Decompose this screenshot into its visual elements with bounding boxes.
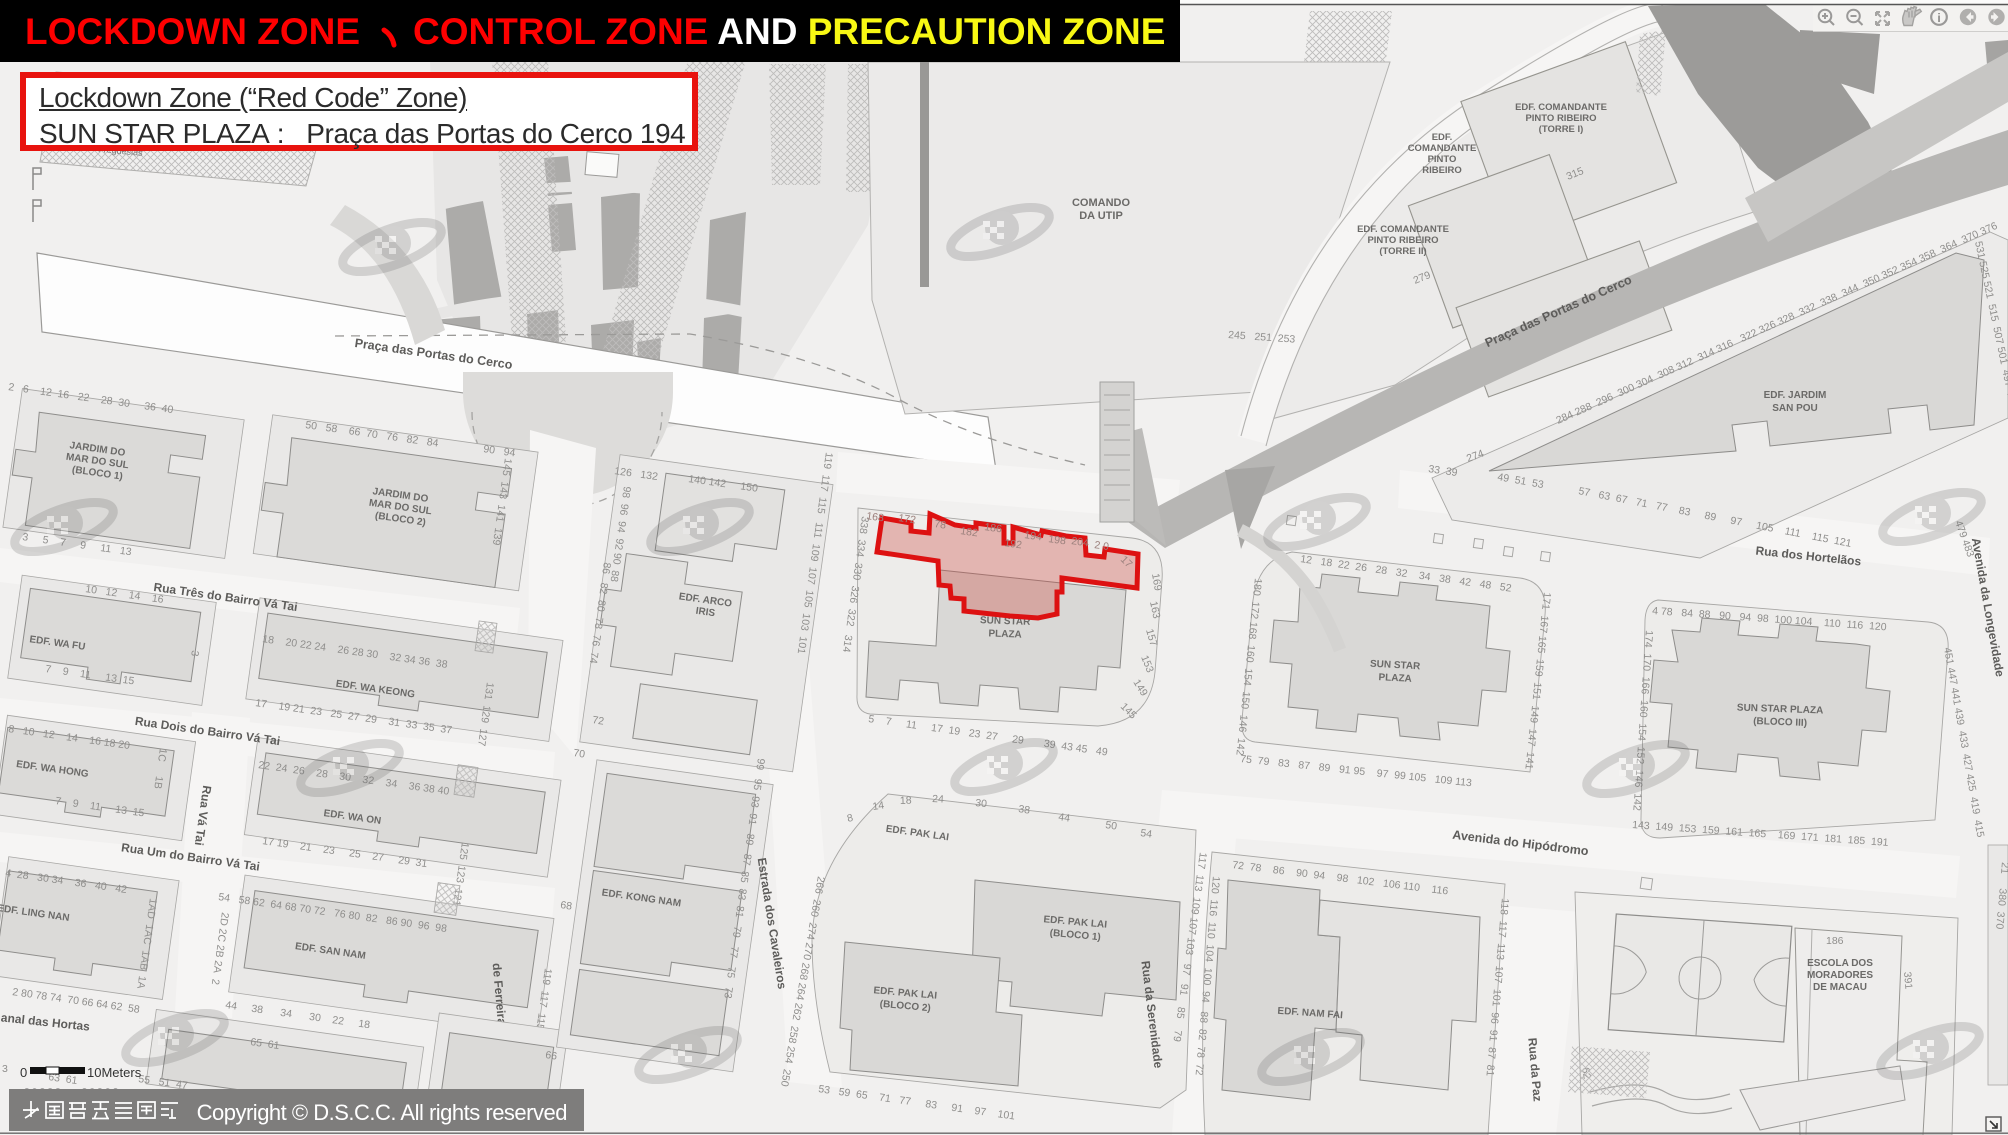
svg-text:(BLOCO III): (BLOCO III) [1753,716,1807,729]
svg-text:38: 38 [1018,803,1031,817]
svg-text:18: 18 [900,795,912,807]
svg-text:ESCOLA DOS: ESCOLA DOS [1807,958,1873,969]
svg-text:2 0: 2 0 [1094,539,1110,553]
svg-text:PINTO RIBEIRO: PINTO RIBEIRO [1367,235,1438,246]
svg-text:14: 14 [872,799,885,813]
svg-text:COMANDANTE: COMANDANTE [1408,143,1477,154]
svg-text:10Meters: 10Meters [87,1065,142,1080]
svg-text:PINTO: PINTO [1428,154,1457,165]
svg-text:(TORRE I): (TORRE I) [1539,124,1584,135]
svg-text:204: 204 [1071,535,1090,549]
svg-text:50: 50 [1105,819,1118,833]
svg-text:186: 186 [1826,935,1844,947]
svg-text:(TORRE II): (TORRE II) [1379,246,1426,257]
svg-text:78: 78 [934,518,947,532]
svg-text:198: 198 [1048,533,1067,547]
svg-text:SAN POU: SAN POU [1772,403,1818,414]
svg-text:EDF. JARDIM: EDF. JARDIM [1764,390,1827,401]
svg-text:24: 24 [932,793,944,806]
svg-text:COMANDO: COMANDO [1072,197,1130,209]
svg-text:168: 168 [866,510,885,524]
svg-text:391: 391 [1901,971,1914,990]
svg-text:66: 66 [545,1049,558,1063]
svg-text:54: 54 [1140,827,1153,841]
svg-text:0: 0 [20,1065,27,1080]
svg-text:EDF. COMANDANTE: EDF. COMANDANTE [1357,224,1449,235]
svg-text:70: 70 [573,747,586,761]
svg-text:EDF.: EDF. [1432,132,1453,143]
svg-text:PLAZA: PLAZA [988,628,1022,640]
svg-text:68: 68 [560,899,573,913]
svg-text:PLAZA: PLAZA [1378,672,1412,685]
svg-text:172: 172 [898,512,917,526]
svg-text:182: 182 [960,525,979,539]
svg-text:i: i [1937,11,1940,25]
svg-text:EDF. COMANDANTE: EDF. COMANDANTE [1515,102,1607,113]
svg-text:30: 30 [975,797,988,810]
svg-text:DE MACAU: DE MACAU [1813,982,1867,993]
svg-text:MORADORES: MORADORES [1807,970,1873,981]
svg-text:72: 72 [592,714,605,728]
svg-text:RIBEIRO: RIBEIRO [1422,165,1462,176]
svg-text:186: 186 [984,521,1003,535]
svg-text:3: 3 [2,1063,8,1075]
svg-text:192: 192 [1004,537,1023,551]
svg-text:44: 44 [1058,811,1071,825]
svg-text:PINTO RIBEIRO: PINTO RIBEIRO [1525,113,1596,124]
svg-text:194: 194 [1024,529,1043,543]
svg-text:DA UTIP: DA UTIP [1079,210,1123,222]
